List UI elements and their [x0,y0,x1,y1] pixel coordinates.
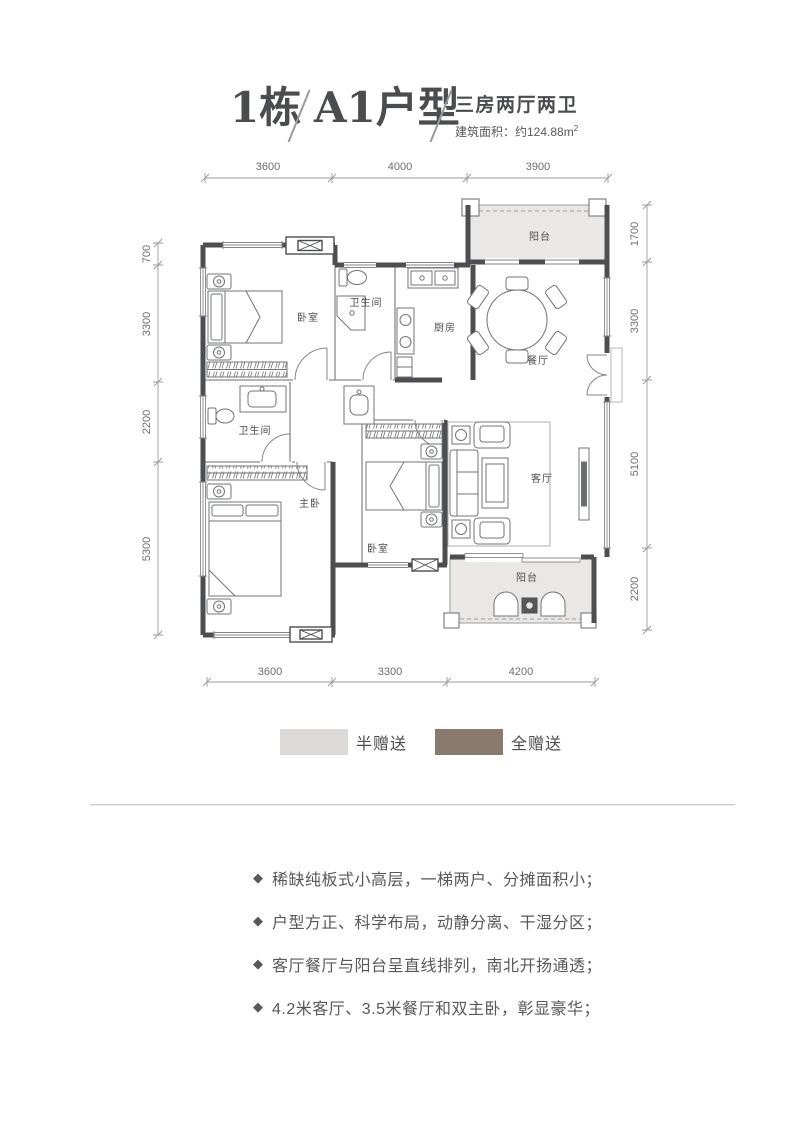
built-area: 建筑面积：约124.88m2 [455,123,625,140]
feature-text: 4.2米客厅、3.5米餐厅和双主卧，彰显豪华； [272,995,600,1019]
diamond-bullet-icon: ◆ [253,1000,263,1013]
legend-label-half-gift: 半赠送 [356,730,407,754]
toilet-bath-top [337,269,374,424]
feature-item: ◆ 4.2米客厅、3.5米餐厅和双主卧，彰显豪华； [253,985,602,1028]
floorplan-flyer-page: { "title": { "building": "1栋", "unit": "… [0,0,800,1129]
toilet-bath-left [208,386,286,424]
feature-item: ◆ 稀缺纯板式小高层，一梯两户、分摊面积小； [253,856,602,899]
legend-swatch-half-gift [280,729,348,755]
balcony-top-area [462,199,607,262]
feature-text: 稀缺纯板式小高层，一梯两户、分摊面积小； [272,866,602,890]
bed-bedroom-top [207,274,287,377]
floor-plan: 阳台 卧室 卫生间 厨房 餐厅 卫生间 主卧 卧室 客厅 阳台 3600 400… [120,150,680,710]
room-label-dining: 餐厅 [527,354,549,367]
room-label-bath-left: 卫生间 [239,424,272,437]
diamond-bullet-icon: ◆ [253,914,263,927]
dim-top-1: 3600 [256,161,280,173]
diamond-bullet-icon: ◆ [253,957,263,970]
dim-top-2: 4000 [388,161,412,173]
dim-right-2: 3300 [629,309,641,333]
feature-text: 户型方正、科学布局，动静分离、干湿分区； [272,909,602,933]
dining-table [466,277,567,363]
dim-left-1: 700 [141,245,153,263]
legend-swatch-full-gift [435,729,503,755]
sofa-set [448,422,589,546]
dim-left-3: 2200 [141,410,153,434]
section-divider [90,804,735,805]
room-label-kitchen: 厨房 [434,321,456,334]
dim-bottom-2: 3300 [378,666,402,678]
bed-bedroom-bottom [366,424,442,527]
room-label-balcony-bottom: 阳台 [516,571,538,584]
room-label-bedroom-bottom: 卧室 [367,542,389,555]
dim-top-3: 3900 [526,161,550,173]
title-right-column: 三房两厅两卫 建筑面积：约124.88m2 [455,90,625,140]
diamond-bullet-icon: ◆ [253,871,263,884]
layout-type: 三房两厅两卫 [455,90,625,117]
floor-plan-svg: 阳台 卧室 卫生间 厨房 餐厅 卫生间 主卧 卧室 客厅 阳台 3600 400… [120,150,680,710]
bed-master [207,466,307,614]
room-label-bedroom-top: 卧室 [297,311,319,324]
feature-text: 客厅餐厅与阳台呈直线排列，南北开扬通透； [272,952,602,976]
built-area-text: 建筑面积：约124.88m [455,125,574,139]
dim-bottom-3: 4200 [509,666,533,678]
dim-right-3: 5100 [629,452,641,476]
dim-right-4: 2200 [629,577,641,601]
balcony-bottom-area [444,557,596,628]
building-number: 1栋 [230,86,301,130]
feature-item: ◆ 户型方正、科学布局，动静分离、干湿分区； [253,899,602,942]
room-label-living: 客厅 [531,472,553,485]
feature-item: ◆ 客厅餐厅与阳台呈直线排列，南北开扬通透； [253,942,602,985]
legend-label-full-gift: 全赠送 [511,730,562,754]
legend: 半赠送 全赠送 [280,729,590,755]
dim-left-4: 5300 [141,537,153,561]
room-label-balcony-top: 阳台 [529,230,551,243]
room-label-bath-top: 卫生间 [350,296,383,309]
dim-bottom-1: 3600 [258,666,282,678]
dim-right-1: 1700 [629,222,641,246]
built-area-sup: 2 [574,124,578,133]
dim-left-2: 3300 [141,312,153,336]
room-label-master: 主卧 [299,497,321,510]
feature-list: ◆ 稀缺纯板式小高层，一梯两户、分摊面积小； ◆ 户型方正、科学布局，动静分离、… [253,856,602,1028]
